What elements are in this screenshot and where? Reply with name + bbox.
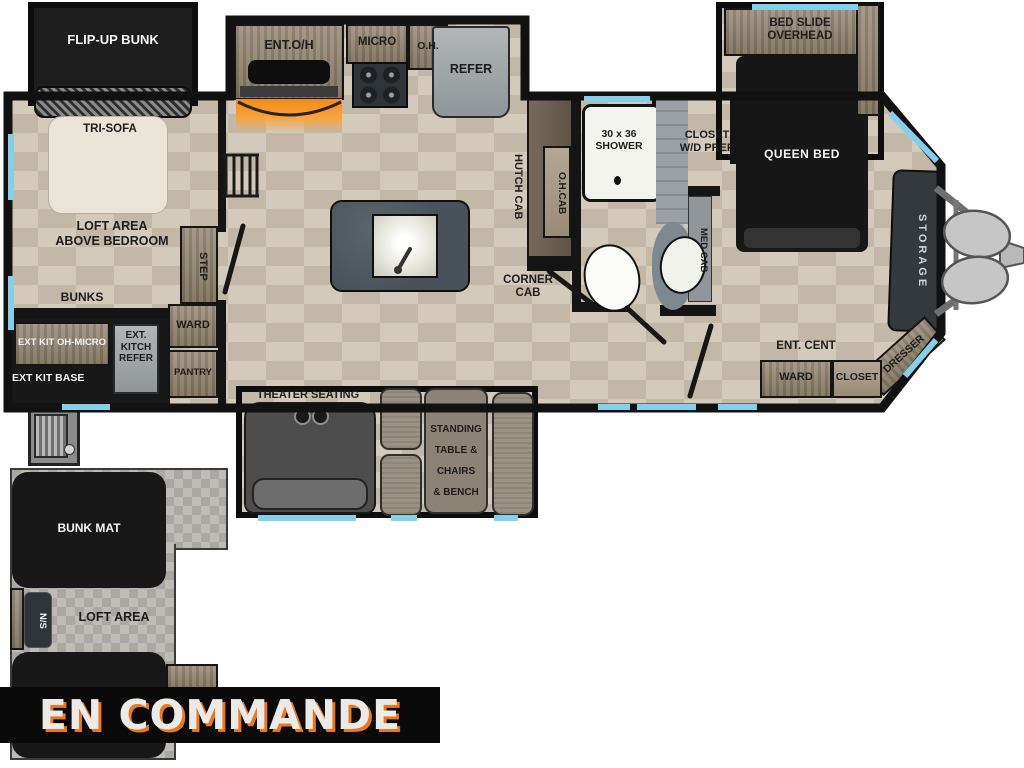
stove-cooktop [352,62,408,108]
storage-label: STORAGE [904,186,928,318]
ext-kitch-line3: REFER [113,353,159,365]
oh-cab-label: O.H.CAB [547,154,567,232]
nightstand-label: N/S [28,600,48,642]
corner-cab-label: CORNER CAB [496,274,560,301]
shower-line2: SHOWER [582,140,656,152]
status-banner-text: EN COMMANDE [39,691,401,739]
loft-above-label: LOFT AREA ABOVE BEDROOM [38,219,186,248]
island-sink [372,214,438,278]
cupholder-right [312,408,329,425]
shower-label: 30 x 36 SHOWER [582,128,656,152]
flip-up-bunk-label: FLIP-UP BUNK [63,32,163,47]
theater-seating-label: THEATER SEATING [250,389,366,402]
bed-slide-line2: OVERHEAD [724,30,876,43]
bunks-label: BUNKS [50,291,114,305]
fs-line3: TABLE & [424,440,488,461]
step-label: STEP [189,236,209,296]
dining-chair-1 [380,388,422,450]
loft-area-label: LOFT AREA [66,610,162,625]
pantry-label: PANTRY [168,367,218,378]
wall-left-wing-upper [218,96,226,232]
propane-tank-1 [941,207,1013,262]
status-banner: EN COMMANDE [0,687,440,743]
fireplace-glow [236,99,342,133]
ext-kitch-line2: KITCH [113,342,159,354]
theater-footrest [252,478,368,510]
ent-oh-label: ENT.O/H [244,38,334,53]
fireplace-base [240,86,338,97]
ext-kit-base-label: EXT KIT BASE [12,372,110,384]
free-standing-label: FREE STANDING TABLE & CHAIRS & BENCH [424,398,488,503]
propane-tank-2 [939,253,1011,308]
ext-kitch-line1: EXT. [113,330,159,342]
oh-label: O.H. [408,40,448,52]
fireplace [248,60,330,84]
loft-above-line2: ABOVE BEDROOM [38,234,186,249]
loft-side-cabinet [10,588,24,650]
tri-sofa-back [34,86,192,118]
floorplan-canvas: FLIP-UP BUNK TRI-SOFA LOFT AREA ABOVE BE… [0,0,1024,768]
griddle-knob [64,444,75,455]
bed-slide-line1: BED SLIDE [724,17,876,30]
ext-kit-oh-micro-label: EXT KIT OH-MICRO [14,337,110,348]
closet-right-label: CLOSET [832,371,882,383]
bed-slide-label: BED SLIDE OVERHEAD [724,17,876,44]
tri-sofa-label: TRI-SOFA [72,123,148,136]
shower-drain [614,176,621,185]
wall-bath-left [572,96,581,312]
ward-left-label: WARD [168,319,218,332]
cupholder-left [294,408,311,425]
ext-kitch-refer-label: EXT. KITCH REFER [113,330,159,365]
dining-bench [492,392,534,516]
bath-vanity-wall [656,98,688,224]
fs-line2: STANDING [424,419,488,440]
corner-cab-line2: CAB [496,287,560,300]
queen-bed-label: QUEEN BED [752,148,852,162]
med-cab-label: MED CAB [689,206,709,294]
hutch-cab-label: HUTCH CAB [504,132,524,242]
queen-bed-foot [744,228,860,248]
corner-cab-box [527,258,575,271]
shower-box [582,104,662,202]
closet-wd-label: CLOSET W/D PREP [666,129,748,155]
wall-left-wing-lower [218,300,226,406]
fs-line4: CHAIRS [424,461,488,482]
micro-label: MICRO [346,36,408,49]
fs-line1: FREE [424,398,488,419]
hitch-assembly [936,188,1024,314]
ward-right-label: WARD [760,371,832,384]
dining-chair-2 [380,454,422,516]
corner-cab-line1: CORNER [496,274,560,287]
refer-label: REFER [440,62,502,77]
closet-wd-line1: CLOSET [666,129,748,142]
ent-cent-label: ENT. CENT [758,340,854,353]
bunk-mat-label: BUNK MAT [28,522,150,536]
griddle-lid [34,414,68,458]
fs-line5: & BENCH [424,482,488,503]
closet-wd-line2: W/D PREP [666,142,748,155]
hitch-coupler [1000,240,1024,268]
loft-above-line1: LOFT AREA [38,219,186,234]
shower-line1: 30 x 36 [582,128,656,140]
wall-ext-kitchen [8,308,170,318]
